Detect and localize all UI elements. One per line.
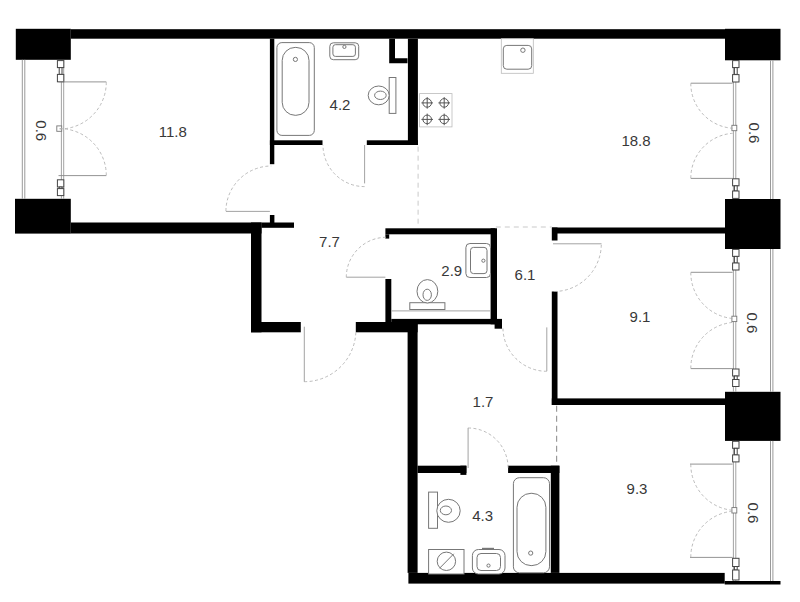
svg-text:9.3: 9.3	[627, 480, 648, 497]
svg-text:0.6: 0.6	[745, 503, 762, 524]
svg-text:0.6: 0.6	[746, 123, 763, 144]
svg-text:1.7: 1.7	[473, 393, 494, 410]
svg-text:4.2: 4.2	[330, 96, 351, 113]
svg-text:9.1: 9.1	[630, 308, 651, 325]
svg-text:18.8: 18.8	[621, 132, 650, 149]
svg-text:11.8: 11.8	[159, 123, 187, 140]
svg-text:2.9: 2.9	[441, 262, 462, 279]
svg-text:0.6: 0.6	[33, 120, 50, 141]
svg-text:7.7: 7.7	[319, 233, 340, 250]
svg-text:0.6: 0.6	[744, 313, 761, 334]
svg-text:4.3: 4.3	[472, 507, 493, 524]
svg-text:6.1: 6.1	[515, 266, 536, 283]
